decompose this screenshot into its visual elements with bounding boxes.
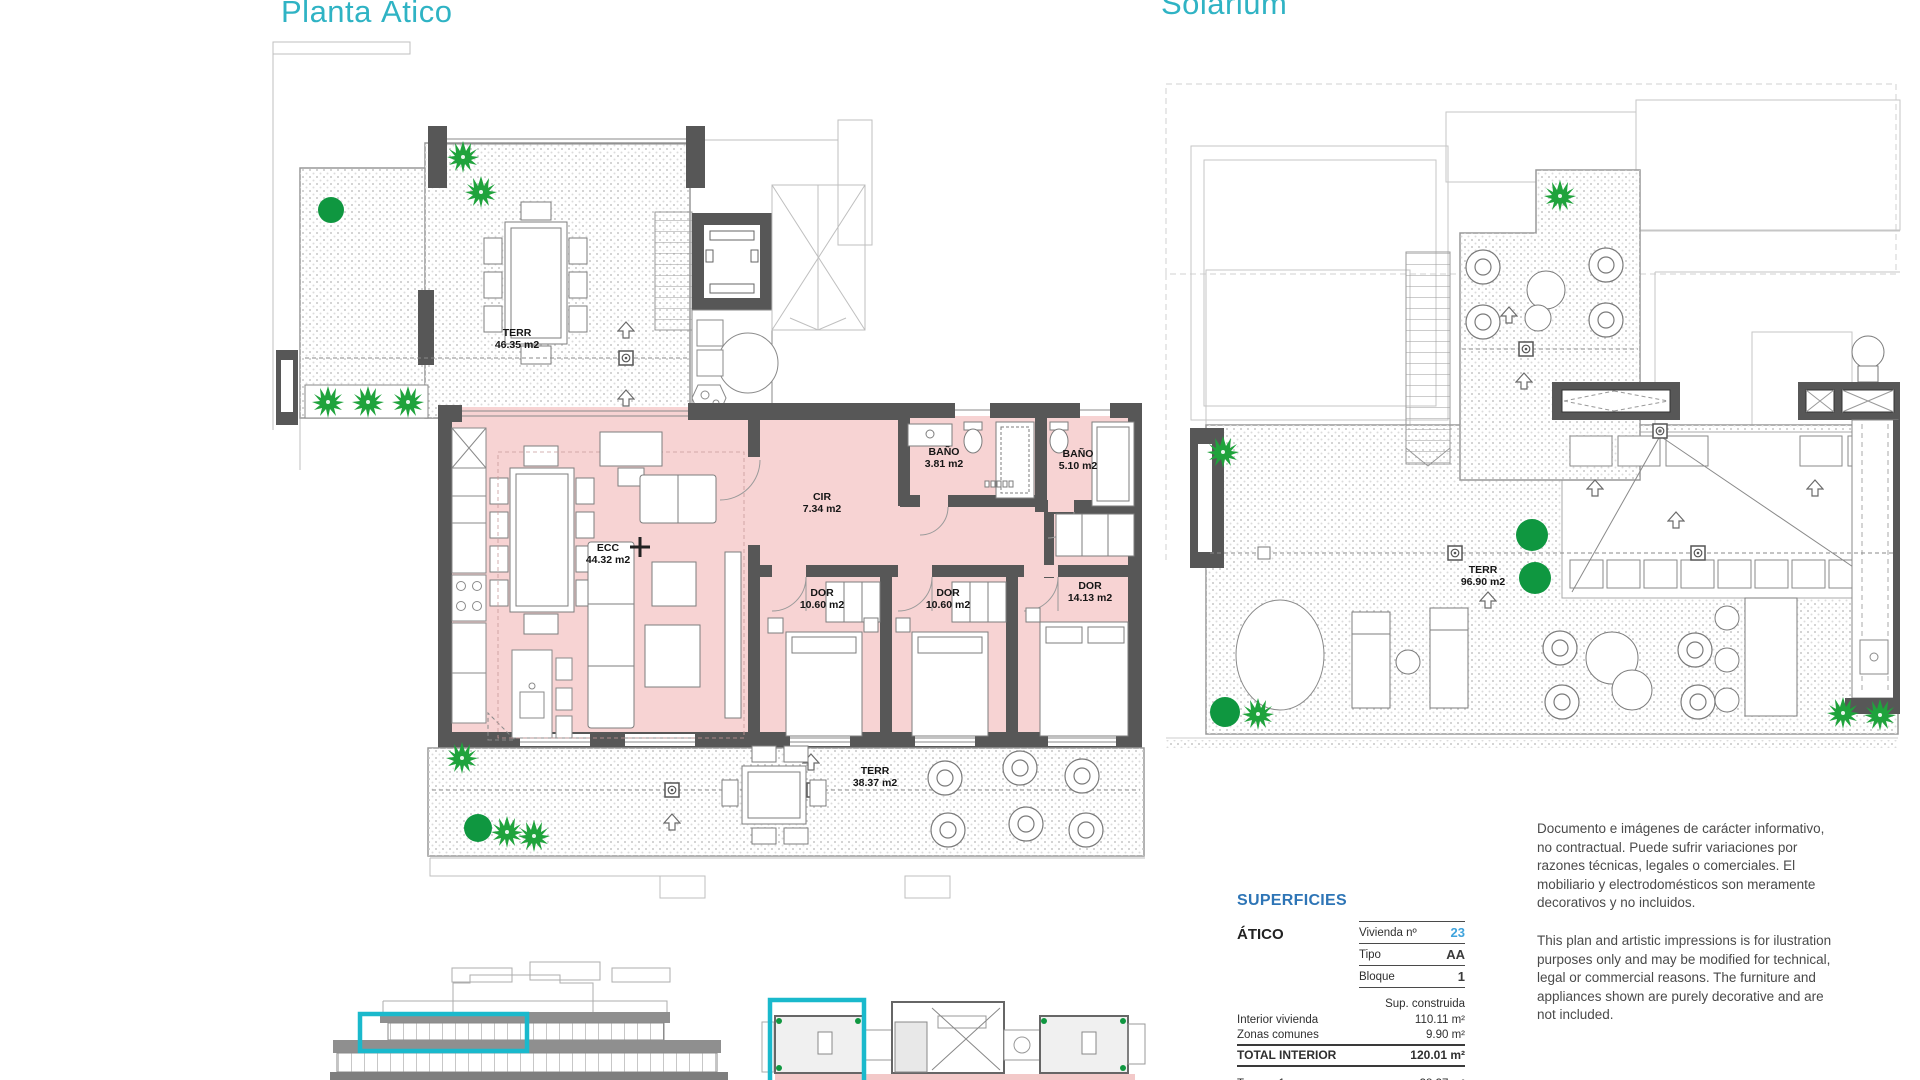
- floorplan-canvas: TERR 46.35 m2: [0, 0, 1920, 1080]
- page-title-right: Solarium: [1161, 0, 1287, 22]
- apartment-interior: ECC 44.32 m2 CIR 7.34 m2 BAÑO 3.81 m2 BA…: [438, 403, 1142, 748]
- room-area: 96.90 m2: [1461, 576, 1506, 588]
- tree-icon: [1210, 697, 1240, 727]
- superficies-table: SUPERFICIES ÁTICO Vivienda nº 23 Tipo AA…: [1237, 888, 1465, 1080]
- room-label: DOR: [1078, 580, 1102, 592]
- room-area: 38.37 m2: [853, 777, 898, 789]
- round-chair-icon: [1009, 807, 1043, 841]
- key-plan: [762, 1000, 1145, 1080]
- disclaimer-es: Documento e imágenes de carácter informa…: [1537, 820, 1842, 913]
- level-marker-icon: [1519, 342, 1533, 356]
- disclaimer-en: This plan and artistic impressions is fo…: [1537, 932, 1842, 1025]
- round-chair-icon: [1678, 633, 1712, 667]
- round-chair-icon: [1545, 685, 1579, 719]
- neighbor-stair: [772, 185, 865, 330]
- terrace-top: TERR 46.35 m2: [276, 126, 705, 425]
- level-marker-icon: [665, 783, 679, 797]
- room-label: DOR: [810, 587, 834, 599]
- room-area: 46.35 m2: [495, 339, 540, 351]
- room-label: BAÑO: [929, 445, 960, 458]
- room-area: 10.60 m2: [800, 599, 845, 611]
- room-area: 44.32 m2: [586, 554, 631, 566]
- vent-row: [985, 481, 1013, 487]
- table-row: Tipo AA: [1359, 944, 1465, 966]
- room-label: CIR: [813, 491, 832, 503]
- room-label: ECC: [597, 542, 620, 554]
- round-chair-icon: [1003, 751, 1037, 785]
- table-row: Interior vivienda 110.11 m²: [1237, 1014, 1465, 1029]
- round-chair-icon: [1069, 813, 1103, 847]
- room-label: BAÑO: [1063, 447, 1094, 460]
- round-chair-icon: [931, 813, 965, 847]
- page-title-left: Planta Ático: [281, 0, 452, 30]
- level-marker-icon: [1691, 546, 1705, 560]
- unit-info-table: Vivienda nº 23 Tipo AA Bloque 1: [1359, 921, 1465, 988]
- room-label: TERR: [1469, 564, 1498, 576]
- table-title: SUPERFICIES: [1237, 892, 1347, 910]
- room-area: 14.13 m2: [1068, 592, 1113, 604]
- round-chair-icon: [1681, 685, 1715, 719]
- table-row: Bloque 1: [1359, 966, 1465, 988]
- tree-icon: [318, 197, 344, 223]
- plan-sheet: TERR 46.35 m2: [0, 0, 1920, 1080]
- table-row: Zonas comunes 9.90 m²: [1237, 1029, 1465, 1044]
- round-chair-icon: [1589, 303, 1623, 337]
- total-row: TOTAL INTERIOR 120.01 m²: [1237, 1044, 1465, 1067]
- round-chair-icon: [1589, 248, 1623, 282]
- round-chair-icon: [1065, 759, 1099, 793]
- room-area: 10.60 m2: [926, 599, 971, 611]
- terrace-bottom: TERR 38.37 m2: [428, 742, 1144, 856]
- room-area: 7.34 m2: [803, 503, 842, 515]
- solarium-upper-terrace: [1406, 170, 1640, 480]
- level-marker-icon: [1448, 546, 1462, 560]
- sup-construida-header: Sup. construida: [1385, 998, 1465, 1010]
- elevation-drawing: [330, 962, 728, 1080]
- bulb-shape: [1852, 336, 1884, 368]
- plan-solarium: TERR 96.90 m2: [1166, 84, 1900, 748]
- room-label: DOR: [936, 587, 960, 599]
- level-marker-icon: [619, 351, 633, 365]
- room-label: TERR: [861, 765, 890, 777]
- table-row: Vivienda nº 23: [1359, 922, 1465, 944]
- round-chair-icon: [1466, 250, 1500, 284]
- tree-icon: [1516, 519, 1548, 551]
- round-chair-icon: [928, 761, 962, 795]
- room-area: 5.10 m2: [1059, 460, 1098, 472]
- level-marker-icon: [1653, 424, 1667, 438]
- table-section: ÁTICO: [1237, 926, 1284, 943]
- round-chair-icon: [1466, 305, 1500, 339]
- room-area: 3.81 m2: [925, 458, 964, 470]
- plan-planta-atico: TERR 46.35 m2: [273, 42, 1145, 898]
- tree-icon: [464, 814, 492, 842]
- round-chair-icon: [1543, 631, 1577, 665]
- tree-icon: [1519, 562, 1551, 594]
- room-label: TERR: [503, 327, 532, 339]
